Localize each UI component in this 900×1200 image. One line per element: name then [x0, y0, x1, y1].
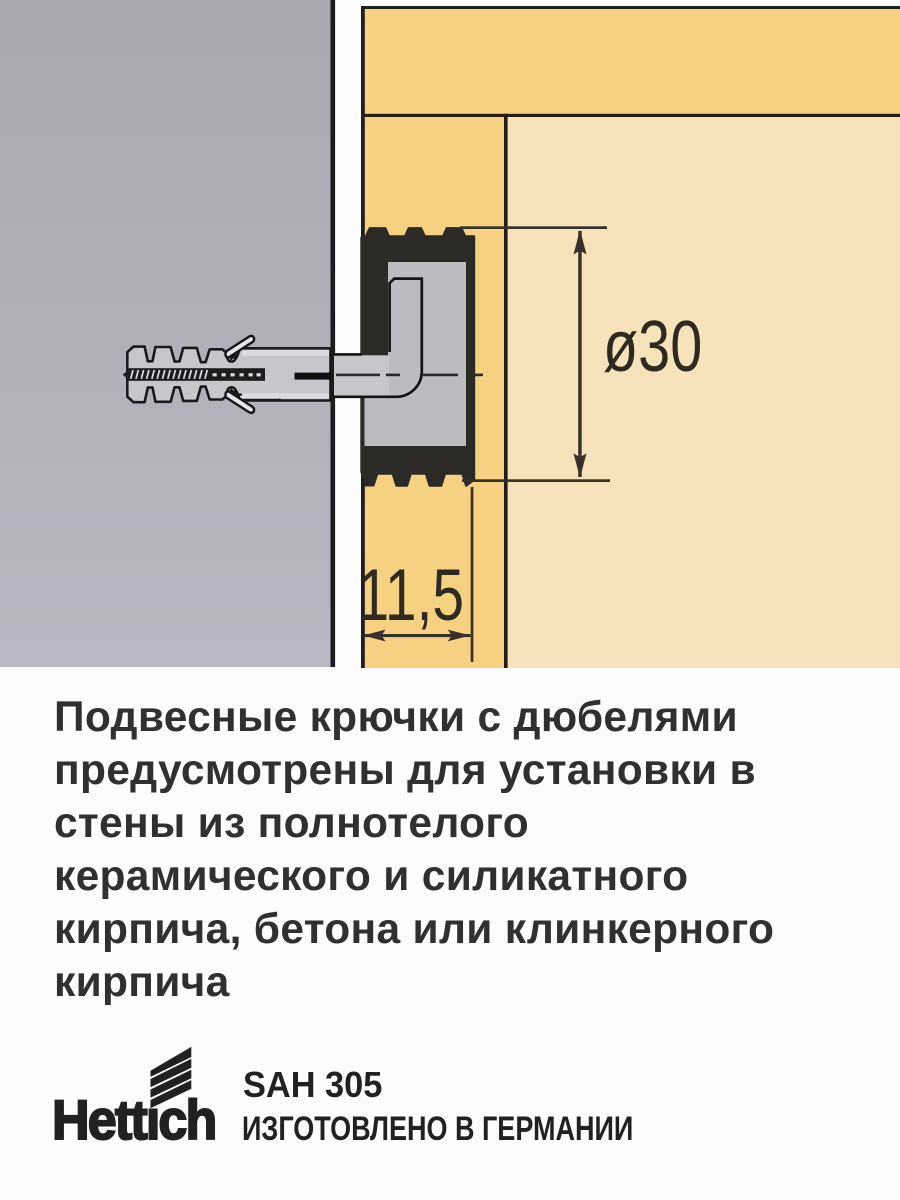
svg-text:ø30: ø30 [603, 306, 702, 387]
svg-text:11,5: 11,5 [358, 554, 465, 635]
